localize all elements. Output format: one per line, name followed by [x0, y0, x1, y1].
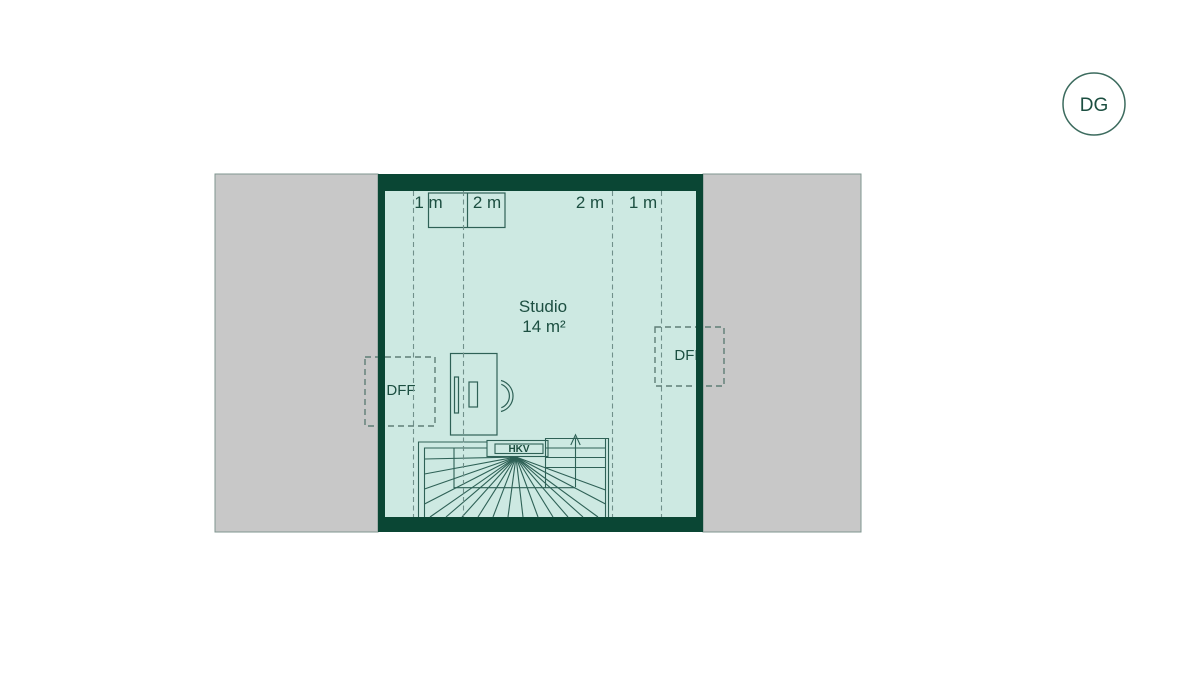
- dimension-label-2: 2 m: [473, 193, 501, 212]
- hkv-label: HKV: [508, 444, 529, 455]
- roof-area-left: [215, 174, 378, 532]
- room-floor: [385, 191, 696, 517]
- room-area: 14 m²: [522, 317, 566, 336]
- roof-window-left-label: DFF: [386, 382, 415, 399]
- room-name: Studio: [519, 297, 567, 316]
- floorplan-page: DFF DFF: [0, 0, 1200, 700]
- dimension-label-1: 1 m: [414, 193, 442, 212]
- floor-badge: DG: [1063, 73, 1125, 135]
- dimension-label-4: 1 m: [629, 193, 657, 212]
- floor-badge-label: DG: [1080, 95, 1109, 116]
- roof-area-right: [703, 174, 861, 532]
- dimension-label-3: 2 m: [576, 193, 604, 212]
- floorplan-drawing: DFF DFF: [0, 0, 1200, 700]
- room-label: Studio 14 m²: [519, 297, 567, 336]
